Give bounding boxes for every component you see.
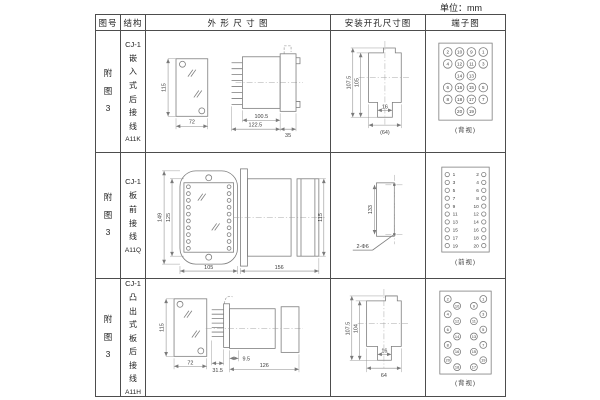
svg-text:1: 1	[453, 172, 456, 178]
svg-text:13: 13	[469, 73, 475, 78]
svg-text:3: 3	[482, 312, 485, 317]
svg-text:18: 18	[457, 97, 463, 102]
header-outline: 外 形 尺 寸 图	[146, 15, 331, 31]
dim-front-width: 72	[189, 120, 195, 126]
dim-cutout-height-inner: 104	[354, 324, 360, 333]
mount-hole-icon	[198, 348, 204, 354]
screw-hole-icon	[206, 254, 212, 260]
header-terminal-label: 端子图	[451, 17, 480, 29]
svg-text:13: 13	[453, 220, 459, 226]
hatch-mark-icon	[192, 331, 200, 338]
hatch-mark-icon	[198, 194, 206, 201]
svg-text:14: 14	[455, 334, 460, 339]
svg-text:4: 4	[447, 312, 450, 317]
dim-offset: 9.5	[242, 356, 250, 362]
svg-text:18: 18	[474, 235, 480, 241]
svg-text:17: 17	[453, 235, 459, 241]
structure-label-a11h: 凸出式板后接线	[129, 291, 137, 386]
svg-text:17: 17	[469, 97, 475, 102]
figure-no-a11h: 附图3	[104, 311, 113, 365]
svg-text:2: 2	[447, 296, 449, 301]
terminal-cell-a11h: 2104126148162018193115137151917 (背视)	[426, 279, 506, 397]
svg-text:1: 1	[482, 296, 484, 301]
dim-cutout-height-inner: 105	[355, 78, 361, 87]
svg-text:11: 11	[469, 61, 474, 66]
header-install-label: 安装开孔尺寸图	[345, 17, 412, 29]
dim-cutout-height-outer: 107.5	[346, 76, 352, 90]
svg-text:7: 7	[482, 97, 485, 102]
svg-text:9: 9	[473, 303, 475, 308]
hatch-mark-icon	[188, 70, 196, 77]
outline-cell-a11h: 115 72 9.5 31.5	[146, 279, 331, 397]
dim-inner-height: 125	[166, 213, 172, 222]
hole-mark-icon	[393, 184, 395, 186]
install-drawing-a11q: 133 2-Φ6	[331, 153, 425, 278]
header-structure: 结构	[121, 15, 146, 31]
install-cell-a11h: 107.5 104 16 64	[331, 279, 426, 397]
dim-flange: 35	[285, 133, 291, 139]
svg-text:12: 12	[474, 212, 480, 218]
outline-cell-a11k: 115 72 100.5 122.5	[146, 31, 331, 153]
dim-total-length: 122.5	[249, 123, 263, 129]
terminal-cell-a11q: 1234567891011121314151617181920 (前视)	[426, 153, 506, 279]
figure-no-cell-a11h: 附图3	[96, 279, 121, 397]
svg-text:16: 16	[455, 349, 460, 354]
svg-text:20: 20	[446, 358, 451, 363]
svg-text:7: 7	[482, 342, 484, 347]
mount-hole-icon	[177, 301, 183, 307]
terminal-cell-a11k: 2109141211314136161558181772019 (背视)	[426, 31, 506, 153]
hatch-mark-icon	[212, 223, 220, 230]
header-structure-label: 结构	[123, 17, 142, 29]
dim-body-length: 100.5	[255, 114, 269, 120]
svg-text:10: 10	[474, 204, 480, 210]
header-figure-no: 图号	[96, 15, 121, 31]
hatch-mark-icon	[184, 311, 192, 318]
dim-side-height: 115	[318, 213, 324, 222]
terminal-diagram-a11q: 1234567891011121314151617181920 (前视)	[426, 153, 505, 278]
svg-text:4: 4	[476, 180, 479, 186]
terminal-pins: 2109141211314136161558181772019	[443, 48, 487, 116]
dim-notch-width: 16	[381, 348, 387, 354]
svg-text:2: 2	[446, 50, 449, 55]
structure-label-a11q: 板前接线	[129, 189, 137, 243]
terminal-diagram-a11k: 2109141211314136161558181772019 (背视)	[426, 31, 505, 152]
svg-text:16: 16	[457, 85, 463, 90]
svg-text:18: 18	[455, 365, 460, 370]
figure-no-a11k: 附图3	[104, 65, 113, 119]
code-label-a11q: A11Q	[125, 247, 141, 254]
view-label: (背视)	[455, 378, 476, 387]
svg-text:19: 19	[469, 109, 475, 114]
terminal-pins: 1234567891011121314151617181920	[445, 172, 486, 249]
hole-callout: 2-Φ6	[357, 244, 369, 250]
structure-label-a11k: 嵌入式后接线	[129, 52, 137, 134]
install-drawing-a11h: 107.5 104 16 64	[331, 279, 425, 396]
svg-text:15: 15	[453, 227, 459, 233]
svg-text:6: 6	[446, 85, 449, 90]
clamp-icon	[225, 296, 233, 303]
dim-cutout-width: 64	[381, 373, 387, 379]
svg-text:10: 10	[457, 50, 463, 55]
svg-text:19: 19	[481, 358, 485, 363]
svg-text:5: 5	[482, 85, 485, 90]
mount-hole-icon	[179, 61, 185, 67]
outline-drawing-a11k: 115 72 100.5 122.5	[146, 31, 330, 152]
unit-label: 单位：mm	[440, 1, 482, 14]
svg-text:19: 19	[453, 243, 459, 249]
view-label: (前视)	[455, 257, 476, 266]
install-drawing-a11k: 107.5 105 16 (64)	[331, 31, 425, 152]
svg-text:14: 14	[457, 73, 463, 78]
model-label-a11h: CJ-1	[125, 279, 141, 288]
svg-text:11: 11	[453, 212, 458, 218]
structure-cell-a11k: CJ-1 嵌入式后接线 A11K	[121, 31, 146, 153]
dim-hole-spacing: 133	[368, 205, 374, 214]
dim-front-width: 105	[204, 265, 213, 271]
terminal-strip-right	[227, 185, 231, 250]
svg-text:12: 12	[457, 61, 463, 66]
svg-text:14: 14	[474, 220, 480, 226]
terminal-pins: 2104126148162018193115137151917	[444, 296, 486, 371]
terminal-diagram-a11h: 2104126148162018193115137151917 (背视)	[426, 279, 505, 396]
figure-no-a11q: 附图3	[104, 189, 113, 243]
dim-notch-width: 16	[382, 104, 388, 110]
manual-page: 单位：mm 图号 结构 外 形 尺 寸 图 安装开孔尺寸图 端子图 附图3 CJ…	[0, 0, 600, 400]
svg-text:6: 6	[476, 188, 479, 194]
dim-front-width: 72	[187, 360, 193, 366]
svg-text:9: 9	[470, 50, 473, 55]
model-label-a11q: CJ-1	[125, 177, 141, 186]
svg-text:5: 5	[453, 188, 456, 194]
svg-text:8: 8	[446, 97, 449, 102]
header-install: 安装开孔尺寸图	[331, 15, 426, 31]
svg-text:15: 15	[469, 85, 475, 90]
svg-text:10: 10	[455, 303, 460, 308]
svg-text:4: 4	[446, 61, 449, 66]
svg-text:2: 2	[476, 172, 479, 178]
dim-front-height: 115	[162, 83, 168, 92]
outline-drawing-a11h: 115 72 9.5 31.5	[146, 279, 330, 396]
install-cell-a11k: 107.5 105 16 (64)	[331, 31, 426, 153]
terminal-strip-left	[187, 185, 191, 250]
terminal-comb-icon	[232, 63, 243, 105]
model-label-a11k: CJ-1	[125, 40, 141, 49]
view-label: (背视)	[455, 125, 476, 134]
outline-cell-a11q: 149 125 105 115	[146, 153, 331, 279]
svg-text:20: 20	[474, 243, 480, 249]
header-outline-label: 外 形 尺 寸 图	[208, 17, 269, 29]
code-label-a11k: A11K	[125, 136, 140, 143]
structure-cell-a11h: CJ-1 凸出式板后接线 A11H	[121, 279, 146, 397]
svg-text:15: 15	[472, 349, 477, 354]
outline-drawing-a11q: 149 125 105 115	[146, 153, 330, 278]
structure-cell-a11q: CJ-1 板前接线 A11Q	[121, 153, 146, 279]
svg-text:12: 12	[455, 319, 459, 324]
dim-depth: 31.5	[212, 368, 223, 374]
code-label-a11h: A11H	[125, 389, 141, 396]
svg-text:9: 9	[453, 204, 456, 210]
svg-text:11: 11	[472, 319, 476, 324]
dim-cutout-width: (64)	[380, 130, 390, 136]
svg-text:20: 20	[457, 109, 463, 114]
dim-outer-height: 149	[158, 213, 164, 222]
install-cell-a11q: 133 2-Φ6	[331, 153, 426, 279]
dim-cutout-height-outer: 107.5	[345, 322, 351, 336]
svg-text:13: 13	[472, 334, 477, 339]
dim-length: 126	[260, 363, 269, 369]
svg-text:8: 8	[476, 196, 479, 202]
figure-no-cell-a11q: 附图3	[96, 153, 121, 279]
svg-text:1: 1	[482, 50, 485, 55]
svg-text:7: 7	[453, 196, 456, 202]
svg-text:6: 6	[447, 327, 450, 332]
svg-text:17: 17	[472, 365, 476, 370]
header-terminal: 端子图	[426, 15, 506, 31]
svg-text:16: 16	[474, 227, 480, 233]
hatch-mark-icon	[194, 91, 202, 98]
dimension-table: 图号 结构 外 形 尺 寸 图 安装开孔尺寸图 端子图 附图3 CJ-1 嵌入式…	[95, 14, 506, 397]
dim-length: 156	[275, 265, 284, 271]
svg-text:3: 3	[453, 180, 456, 186]
svg-text:5: 5	[482, 327, 485, 332]
svg-text:3: 3	[482, 61, 485, 66]
mount-hole-icon	[199, 108, 205, 114]
figure-no-cell-a11k: 附图3	[96, 31, 121, 153]
dim-front-height: 115	[160, 323, 166, 332]
clamp-icon	[284, 46, 291, 54]
terminal-comb-icon	[212, 310, 224, 337]
svg-text:8: 8	[447, 342, 450, 347]
screw-hole-icon	[206, 175, 212, 181]
header-figure-no-label: 图号	[98, 17, 117, 29]
